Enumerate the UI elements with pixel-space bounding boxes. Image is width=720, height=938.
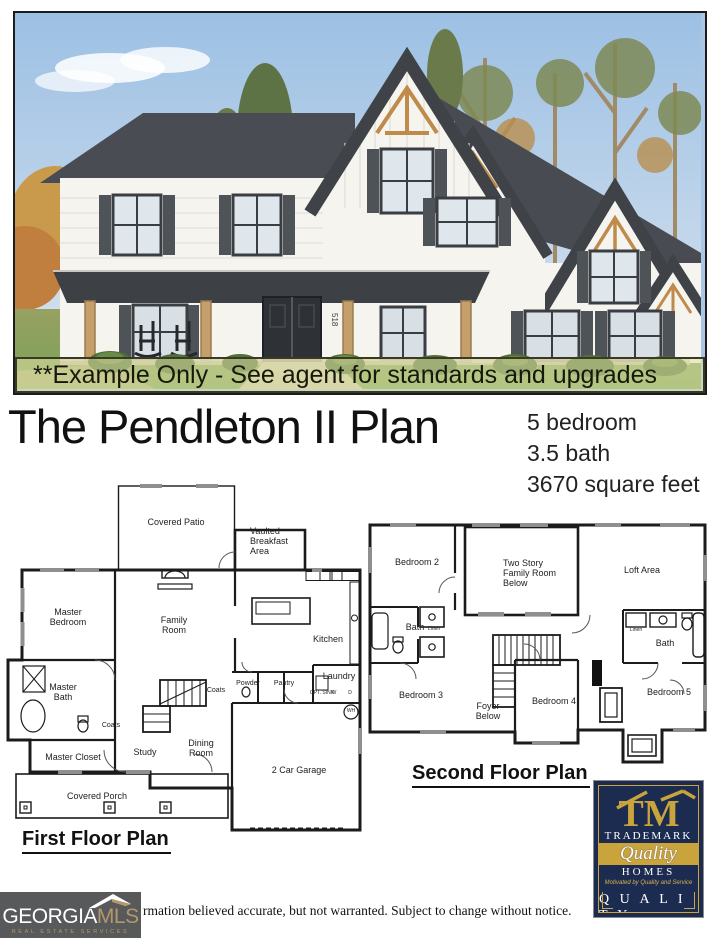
room-label-bedroom3: Bedroom 3 [399, 690, 443, 700]
room-label-study: Study [133, 747, 156, 757]
room-label-covered-patio: Covered Patio [136, 517, 216, 527]
room-label-linen-right: Linen [630, 628, 642, 634]
gamls-mls-text: MLS [97, 906, 139, 927]
tm-logo-inner: TM TRADEMARK Quality HOMES Motivated by … [598, 785, 699, 913]
disclaimer-text: rmation believed accurate, but not warra… [143, 903, 571, 919]
room-label-vaulted-breakfast: Vaulted Breakfast Area [250, 526, 302, 556]
banner-text: **Example Only - See agent for standards… [33, 361, 657, 390]
house-photo-art: 518 [15, 13, 701, 389]
room-label-bath-left: Bath [406, 622, 425, 632]
room-label-kitchen: Kitchen [313, 634, 343, 644]
flyer-page: 518 [0, 0, 720, 938]
plan-title: The Pendleton II Plan [8, 399, 439, 454]
room-label-loft: Loft Area [624, 565, 660, 575]
house-number: 518 [330, 313, 339, 327]
room-label-two-story: Two Story Family Room Below [503, 558, 567, 588]
tm-quality-script: Quality [620, 843, 677, 865]
room-label-powder: Powder [236, 680, 260, 688]
tm-bracket-right [684, 892, 695, 909]
house-photo: 518 [13, 11, 707, 395]
second-floor-heading: Second Floor Plan [412, 762, 590, 788]
gamls-tagline: REAL ESTATE SERVICES [12, 929, 130, 935]
gamls-roof-icon [87, 894, 133, 908]
room-label-bedroom5: Bedroom 5 [647, 687, 691, 697]
label-opt-sink: OPT. SINK [310, 691, 334, 697]
tm-trademark-text: TRADEMARK [605, 830, 693, 842]
tm-gold-band: Quality [599, 843, 698, 865]
plan-specs: 5 bedroom 3.5 bath 3670 square feet [527, 407, 700, 500]
gamls-georgia-text: GEORGIA [2, 906, 97, 927]
georgia-mls-logo: GEORGIAMLS REAL ESTATE SERVICES [0, 892, 141, 938]
second-floor-plan: Bedroom 2 Two Story Family Room Below Lo… [360, 515, 720, 775]
room-label-coats-hall: Coats [207, 687, 225, 695]
first-floor-walls [0, 478, 372, 863]
room-label-covered-porch: Covered Porch [67, 791, 127, 801]
tm-tagline: Motivated by Quality and Service [605, 880, 693, 886]
room-label-master-bedroom: Master Bedroom [44, 607, 92, 627]
spec-bedrooms: 5 bedroom [527, 407, 700, 438]
room-label-coats-master: Coats [102, 722, 120, 730]
room-label-garage: 2 Car Garage [272, 765, 327, 775]
tm-monogram: TM [599, 786, 698, 830]
room-label-master-closet: Master Closet [45, 752, 101, 762]
first-floor-heading: First Floor Plan [22, 828, 171, 854]
first-floor-plan: Covered Patio Vaulted Breakfast Area Mas… [0, 478, 372, 863]
spec-baths: 3.5 bath [527, 438, 700, 469]
room-label-foyer-below: Foyer Below [470, 701, 506, 721]
tm-homes-text: HOMES [622, 866, 676, 878]
room-label-family-room: Family Room [154, 615, 194, 635]
room-label-bedroom4: Bedroom 4 [532, 696, 576, 706]
tm-monogram-text: TM [618, 793, 679, 830]
label-water-heater: WH [347, 709, 355, 715]
room-label-dining-room: Dining Room [181, 738, 221, 758]
room-label-pantry: Pantry [274, 680, 294, 688]
trademark-quality-homes-logo: TM TRADEMARK Quality HOMES Motivated by … [593, 780, 704, 918]
spec-sqft: 3670 square feet [527, 469, 700, 500]
tm-monogram-art: TM [599, 786, 699, 830]
room-label-laundry: Laundry [323, 671, 356, 681]
label-dryer: D [348, 691, 352, 697]
gamls-wordmark: GEORGIAMLS [2, 906, 138, 927]
room-label-bath-right: Bath [656, 638, 675, 648]
tm-bracket-left [602, 892, 613, 909]
room-label-linen-left: Linen [428, 627, 440, 633]
room-label-bedroom2: Bedroom 2 [395, 557, 439, 567]
example-only-banner: **Example Only - See agent for standards… [15, 357, 705, 393]
room-label-master-bath: Master Bath [41, 682, 85, 702]
